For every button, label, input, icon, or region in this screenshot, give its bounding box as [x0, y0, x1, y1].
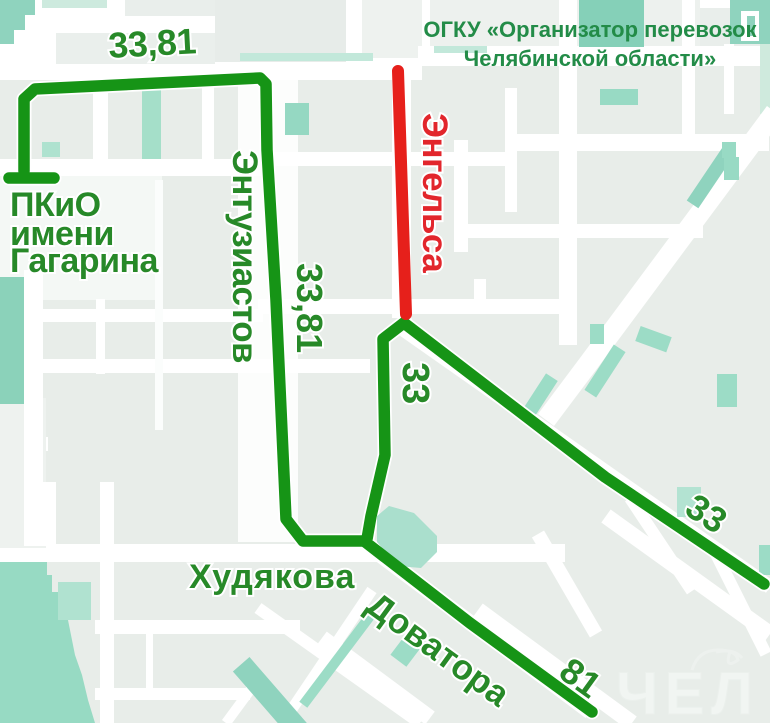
svg-text:33,81: 33,81: [107, 20, 197, 66]
svg-text:ЧЕЛ: ЧЕЛ: [616, 660, 753, 723]
svg-text:Челябинской области»: Челябинской области»: [464, 46, 716, 71]
svg-text:33,81: 33,81: [289, 263, 330, 353]
svg-text:Энгельса: Энгельса: [415, 113, 454, 273]
svg-text:ОГКУ «Организатор перевозок: ОГКУ «Организатор перевозок: [423, 17, 757, 42]
svg-text:33: 33: [394, 362, 436, 404]
svg-text:Гагарина: Гагарина: [10, 242, 160, 280]
svg-text:Энтузиастов: Энтузиастов: [225, 150, 264, 363]
svg-text:Худякова: Худякова: [189, 558, 356, 596]
